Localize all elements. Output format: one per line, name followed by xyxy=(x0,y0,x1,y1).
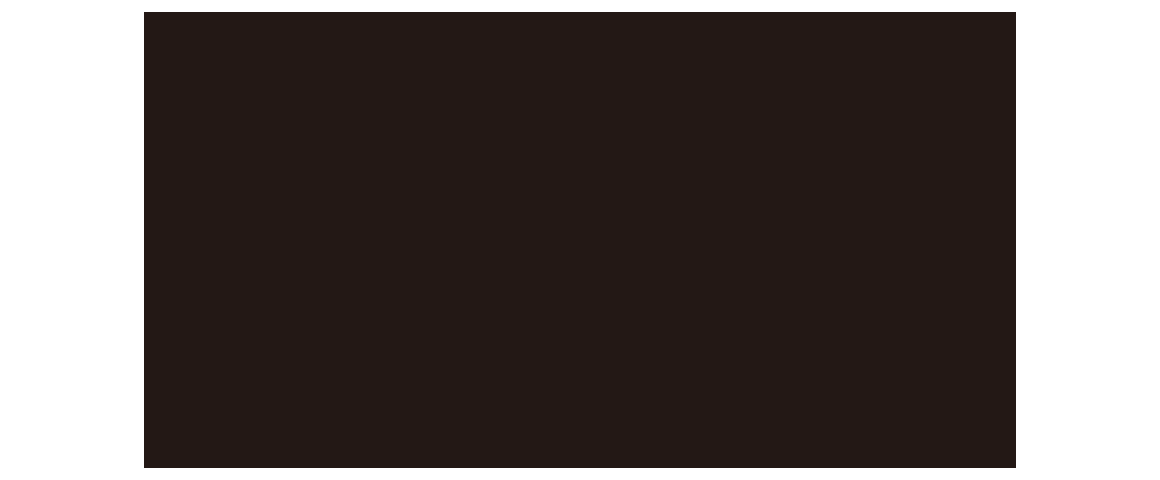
page-background xyxy=(0,0,1160,480)
blank-dark-panel xyxy=(144,12,1016,468)
